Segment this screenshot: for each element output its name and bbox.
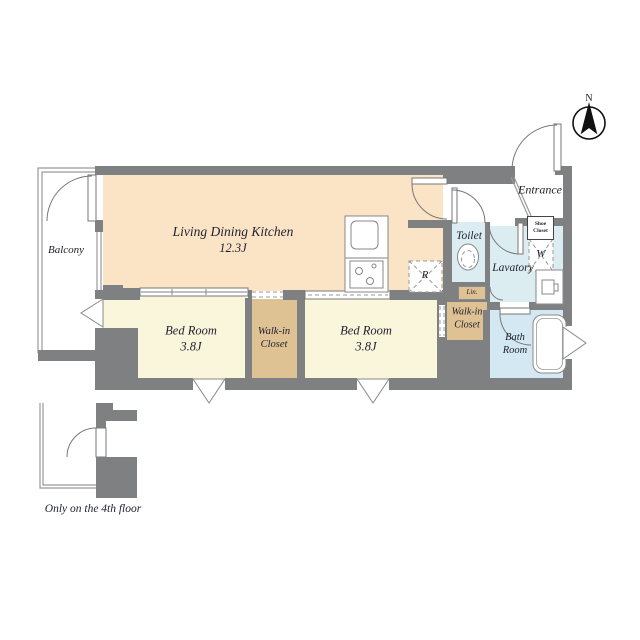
wic1-line2: Closet xyxy=(258,338,290,351)
wall-partition-c xyxy=(390,290,447,300)
ldk-window xyxy=(95,232,103,290)
balcony-railing xyxy=(38,168,98,361)
label-north: N xyxy=(585,93,592,106)
bedroom2-window xyxy=(357,379,389,403)
toilet-door xyxy=(452,188,485,223)
label-bedroom2: Bed Room 3.8J xyxy=(340,323,392,354)
ldk-name: Living Dining Kitchen xyxy=(173,224,294,241)
label-balcony: Balcony xyxy=(48,244,84,258)
fourth-floor-detail xyxy=(40,403,137,498)
entrance-door xyxy=(512,124,561,171)
wall-toilet-right xyxy=(485,222,490,282)
shoe-closet-label-line2: Closet xyxy=(528,228,553,235)
wall-right-upper xyxy=(563,175,572,326)
label-note: Only on the 4th floor xyxy=(45,502,141,516)
bath-line1: Bath xyxy=(503,331,528,344)
wall-pillar xyxy=(95,328,138,380)
wall-ldk-step xyxy=(103,285,123,290)
wall-shaft-block xyxy=(437,340,490,382)
wall-bath-left xyxy=(483,310,490,344)
label-wic1: Walk-in Closet xyxy=(258,325,290,351)
label-bedroom1: Bed Room 3.8J xyxy=(165,323,217,354)
bedroom1-side-window xyxy=(81,299,103,327)
bath-line2: Room xyxy=(503,344,528,357)
bedroom1-name: Bed Room xyxy=(165,323,217,339)
bedroom2-name: Bed Room xyxy=(340,323,392,339)
ldk-size: 12.3J xyxy=(173,241,294,257)
wall-lav-bath-a xyxy=(487,302,500,310)
wall-bottom-b xyxy=(225,378,357,390)
linen-label: Lin. xyxy=(466,288,477,296)
label-bathroom: Bath Room xyxy=(503,331,528,357)
wic1-line1: Walk-in xyxy=(258,325,290,338)
label-toilet: Toilet xyxy=(456,229,482,243)
wall-toilet-left xyxy=(443,222,452,282)
wall-top-hall xyxy=(443,166,515,184)
wic2-line1: Walk-in xyxy=(452,307,483,320)
label-ldk: Living Dining Kitchen 12.3J xyxy=(173,224,294,257)
floor-plan: Shoe Closet Lin. Living Dining Kitchen 1… xyxy=(0,0,640,640)
label-lavatory: Lavatory xyxy=(492,261,534,275)
label-wic2: Walk-in Closet xyxy=(452,307,483,332)
shoe-closet-box: Shoe Closet xyxy=(527,216,554,240)
wall-wic1-left xyxy=(245,298,252,378)
north-compass-icon xyxy=(573,104,605,139)
label-refrigerator: R xyxy=(422,269,429,283)
label-washer: W xyxy=(536,248,545,262)
wall-top-right xyxy=(555,166,572,175)
linen-box: Lin. xyxy=(458,286,486,300)
wall-left-seg1 xyxy=(95,220,103,232)
bedroom1-window xyxy=(193,379,225,403)
bath-window xyxy=(563,327,586,359)
wic2-line2: Closet xyxy=(452,319,483,332)
balcony-door xyxy=(47,175,96,221)
wall-wic1-right xyxy=(297,298,305,378)
label-entrance: Entrance xyxy=(518,183,562,198)
wall-lav-bath-b xyxy=(529,302,563,310)
shoe-closet-label-line1: Shoe xyxy=(528,221,553,228)
bedroom1-size: 3.8J xyxy=(165,339,217,355)
bedroom2-size: 3.8J xyxy=(340,339,392,355)
